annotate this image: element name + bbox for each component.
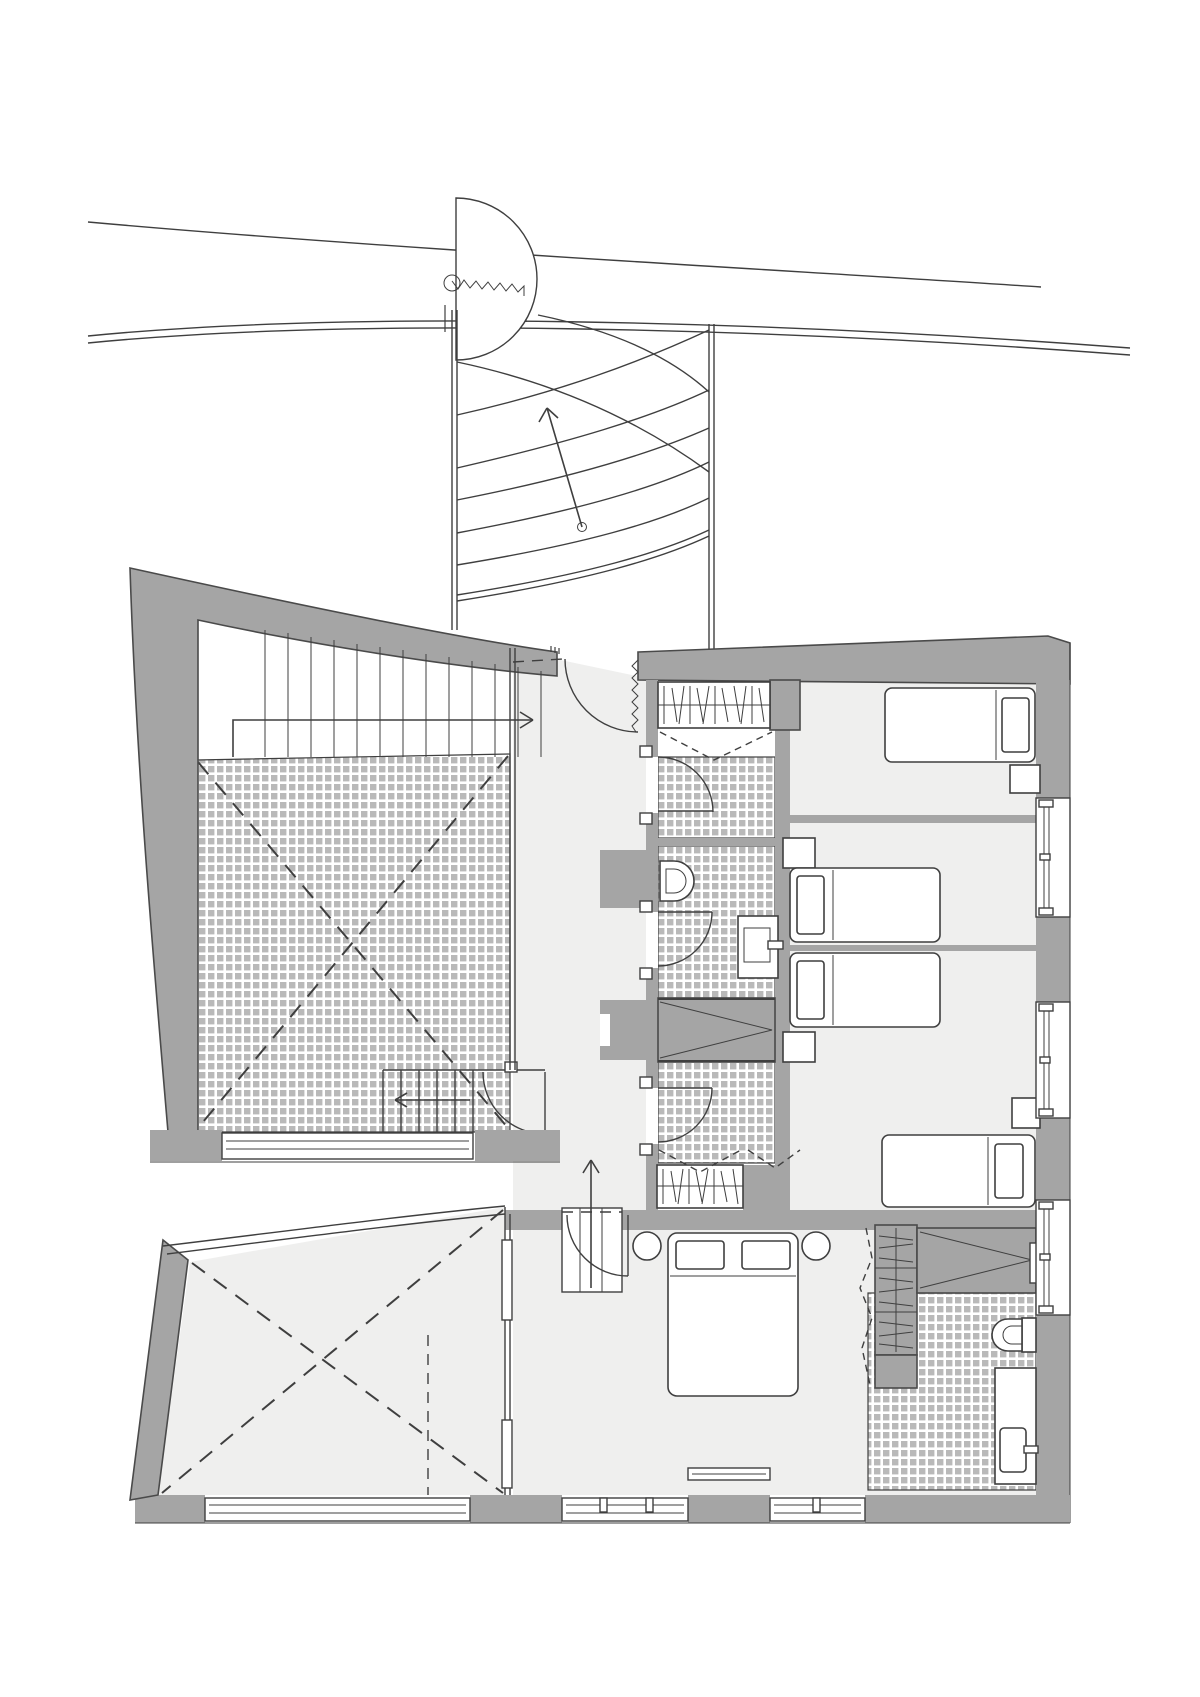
sink-icon: [738, 916, 783, 978]
nightstand-3: [783, 1032, 815, 1062]
wall-right-4: [1036, 1315, 1070, 1495]
stair-walk-arrow: [233, 712, 533, 757]
wardrobe-rail-dash: [660, 732, 772, 760]
toilet-icon: [660, 861, 694, 901]
void-floor: [158, 1207, 505, 1495]
wall-bedroomA-bedroomB: [790, 815, 1038, 823]
bedside-stool-left: [633, 1232, 661, 1260]
windows-right-wall: [1036, 798, 1070, 1315]
bed-double: [668, 1233, 798, 1396]
terrace-sill-block-left: [150, 1130, 222, 1161]
wall-bath1-bath2: [658, 838, 775, 846]
wc-cistern-pier: [600, 850, 658, 908]
wall-master-top-left: [505, 1210, 562, 1230]
wall-master-top-right: [622, 1210, 1070, 1230]
bed-single-2: [790, 868, 940, 942]
wardrobe-row-cap: [743, 1165, 790, 1212]
bed-single-4: [882, 1135, 1035, 1207]
wardrobe-end-cap: [770, 680, 800, 730]
wall-bottom-ensuite: [865, 1495, 1070, 1523]
hall-wardrobe: [658, 682, 772, 760]
wall-right-1: [1036, 680, 1070, 798]
bathroom3-tiles: [658, 1062, 775, 1163]
terrace-sill-block-right: [475, 1130, 560, 1161]
stair-landing-arc-2: [457, 362, 709, 472]
radiator: [688, 1468, 770, 1480]
wall-bottom-void-right: [470, 1495, 513, 1523]
stair-landing-arc-1: [538, 315, 709, 392]
window-master-2: [770, 1498, 865, 1521]
wall-bottom-pier-mid: [688, 1495, 770, 1523]
stair-step-arc-2: [457, 390, 709, 468]
wall-right-2: [1036, 917, 1070, 1002]
wall-topright: [638, 636, 1070, 684]
gate: [444, 198, 537, 360]
ensuite-vanity: [995, 1368, 1038, 1484]
nightstand-1: [1010, 765, 1040, 793]
gate-door-swing-arc: [456, 198, 537, 360]
stair-walk-line-arrow: [539, 408, 587, 532]
wall-bedroomB-bedroomC: [790, 945, 1038, 951]
window-bedroom-middle: [1036, 1002, 1070, 1118]
void-bottom-window: [205, 1498, 470, 1521]
wall-bottom-void-left: [135, 1495, 205, 1523]
wall-right-3: [1036, 1118, 1070, 1200]
window-bedroom-top: [1036, 798, 1070, 917]
central-closet: [658, 998, 775, 1062]
bathroom1-tiles: [658, 757, 775, 838]
street-near-edge-line-2: [88, 328, 1130, 355]
floor-plan-page: [0, 0, 1200, 1697]
ensuite-toilet-icon: [992, 1318, 1036, 1352]
bedside-stool-right: [802, 1232, 830, 1260]
closet-pier-slot: [600, 1014, 610, 1046]
bed-single-1: [885, 688, 1035, 762]
nightstand-2: [783, 838, 815, 868]
hall-floor: [513, 650, 646, 1210]
stair-step-arc-3: [457, 428, 709, 500]
window-master-1: [562, 1498, 688, 1521]
street-far-edge-line: [88, 222, 1041, 287]
ensuite-closet: [917, 1228, 1039, 1293]
bed-single-3: [790, 953, 940, 1027]
floor-plan-drawing: [0, 0, 1200, 1697]
exterior-curved-stair: [452, 310, 714, 652]
window-ensuite: [1036, 1200, 1070, 1315]
